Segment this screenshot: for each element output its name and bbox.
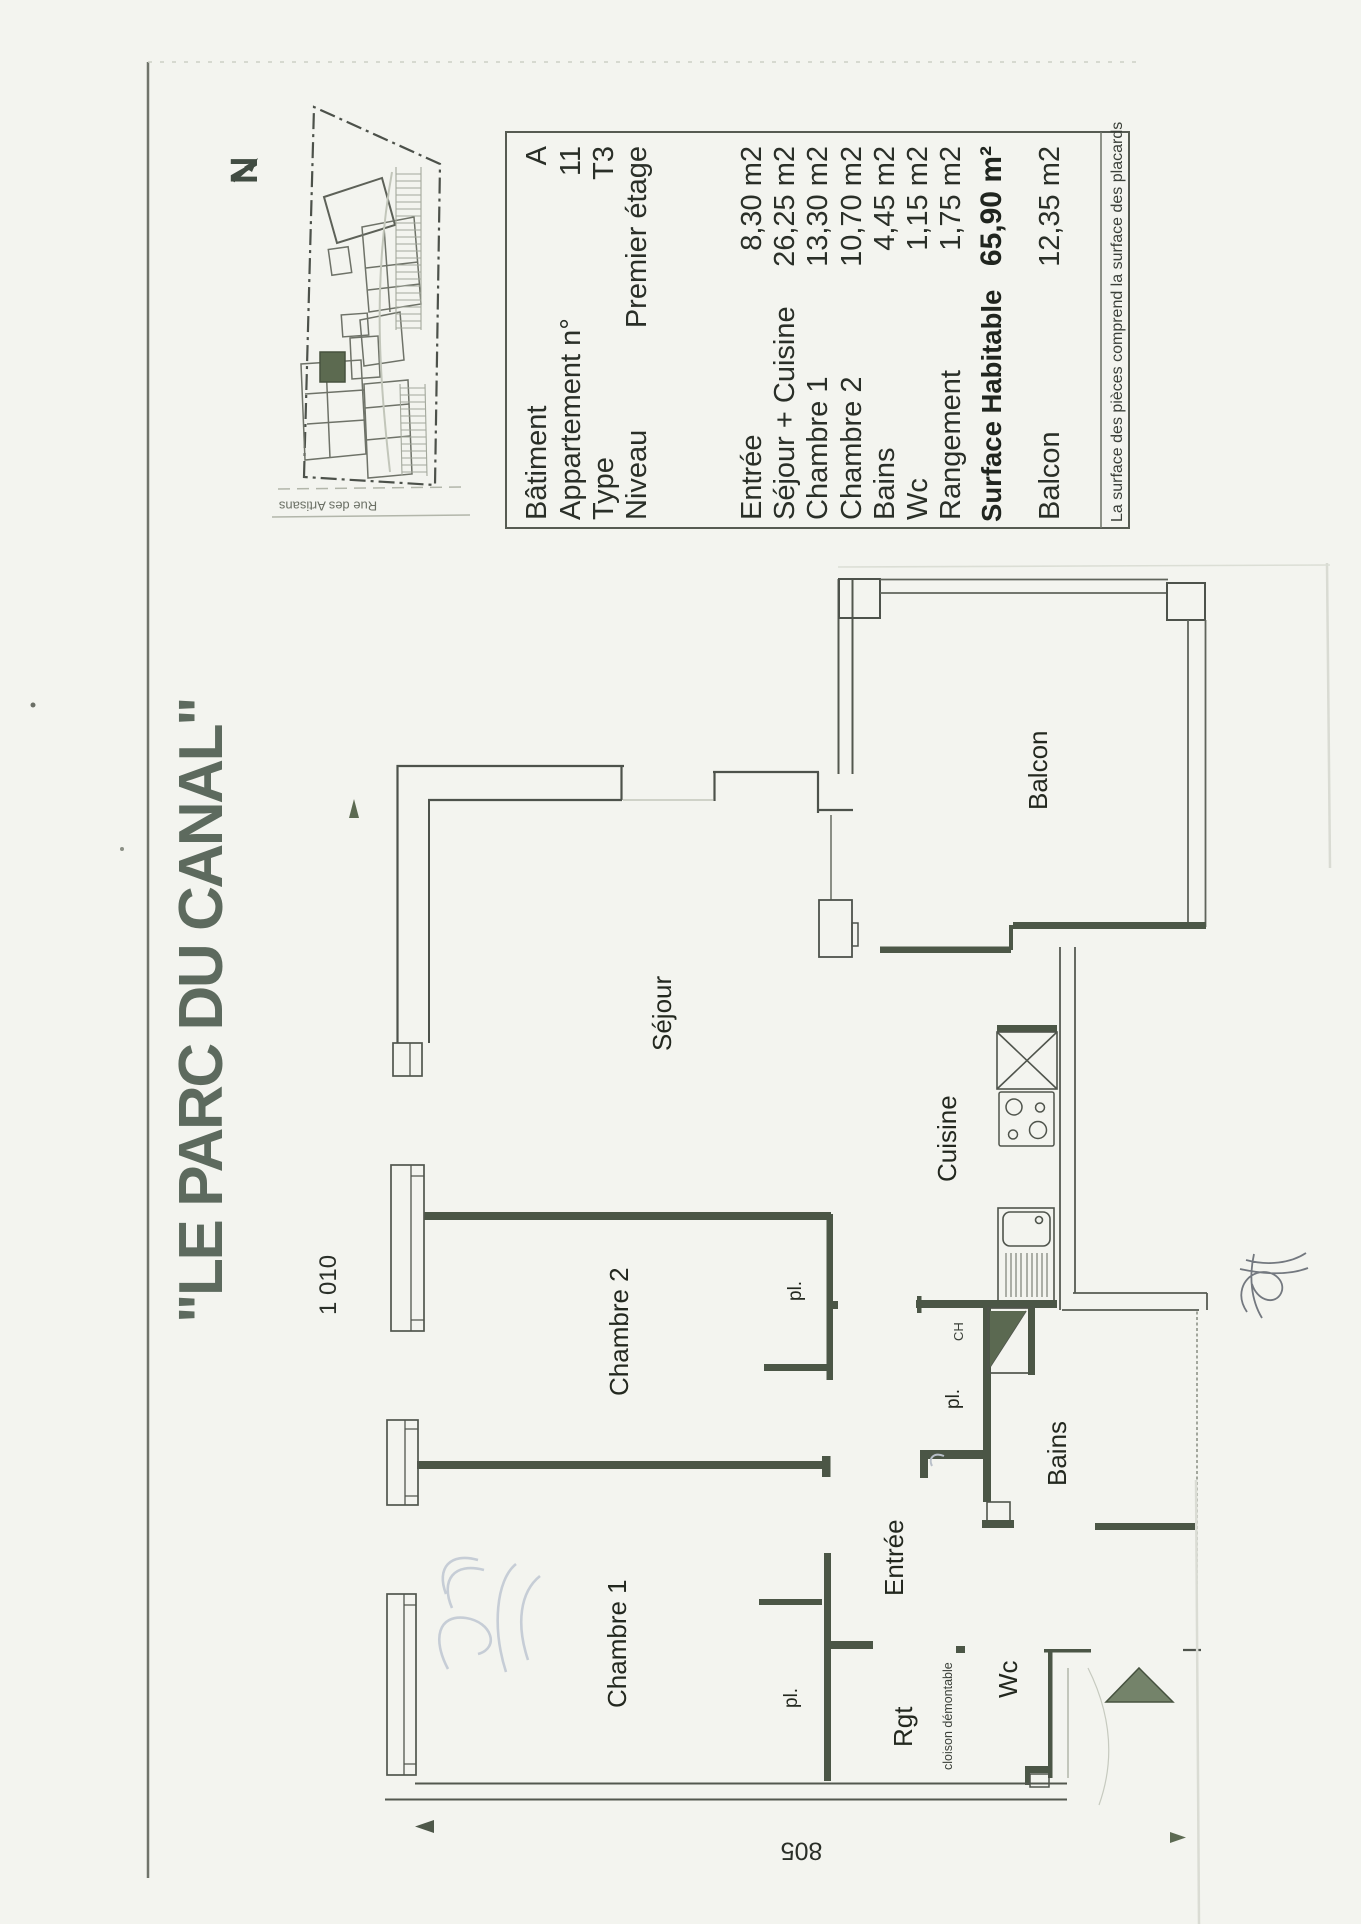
svg-text:Chambre 1: Chambre 1	[802, 377, 834, 520]
svg-text:10,70 m2: 10,70 m2	[836, 146, 868, 267]
svg-text:Chambre 2: Chambre 2	[836, 377, 868, 520]
svg-text:Chambre 2: Chambre 2	[604, 1267, 634, 1396]
svg-text:pl.: pl.	[781, 1688, 802, 1708]
svg-text:1,15 m2: 1,15 m2	[902, 146, 934, 251]
svg-text:65,90 m²: 65,90 m²	[975, 146, 1008, 266]
svg-text:Balcon: Balcon	[1023, 731, 1053, 811]
svg-text:Entrée: Entrée	[879, 1519, 909, 1596]
svg-text:Wc: Wc	[902, 478, 934, 520]
svg-text:Appartement n°: Appartement n°	[555, 318, 587, 520]
svg-text:805: 805	[781, 1837, 823, 1865]
svg-text:A: A	[521, 145, 553, 165]
svg-text:Rue des Artisans: Rue des Artisans	[278, 499, 377, 514]
svg-text:26,25 m2: 26,25 m2	[769, 146, 801, 267]
svg-text:"LE PARC DU CANAL": "LE PARC DU CANAL"	[167, 699, 236, 1323]
svg-text:cloison démontable: cloison démontable	[941, 1662, 955, 1770]
svg-text:4,45 m2: 4,45 m2	[869, 146, 901, 251]
svg-text:Wc: Wc	[993, 1660, 1023, 1698]
svg-text:pl.: pl.	[943, 1389, 964, 1409]
svg-text:Bains: Bains	[869, 447, 901, 520]
svg-text:Premier étage: Premier étage	[621, 146, 653, 328]
svg-text:11: 11	[555, 146, 587, 176]
svg-text:12,35 m2: 12,35 m2	[1034, 146, 1066, 267]
svg-text:Balcon: Balcon	[1034, 431, 1066, 520]
svg-text:Séjour: Séjour	[647, 976, 677, 1051]
svg-text:Rgt: Rgt	[888, 1706, 918, 1747]
svg-text:pl.: pl.	[785, 1281, 806, 1301]
svg-text:La surface des pièces comprend: La surface des pièces comprend la surfac…	[1109, 122, 1126, 522]
svg-text:Chambre 1: Chambre 1	[602, 1579, 632, 1708]
svg-text:1 010: 1 010	[315, 1255, 342, 1315]
svg-text:Bains: Bains	[1042, 1421, 1072, 1486]
svg-text:CH: CH	[951, 1322, 966, 1341]
svg-text:Cuisine: Cuisine	[932, 1095, 962, 1182]
svg-text:Bâtiment: Bâtiment	[521, 406, 553, 520]
svg-text:Type: Type	[588, 457, 620, 520]
svg-text:Surface Habitable: Surface Habitable	[976, 290, 1007, 522]
svg-text:T3: T3	[588, 146, 620, 180]
svg-text:Séjour + Cuisine: Séjour + Cuisine	[769, 306, 801, 520]
svg-text:Rangement: Rangement	[935, 370, 967, 520]
svg-text:Entrée: Entrée	[736, 435, 768, 520]
svg-text:8,30 m2: 8,30 m2	[736, 146, 768, 251]
svg-text:1,75 m2: 1,75 m2	[935, 146, 967, 251]
svg-text:13,30 m2: 13,30 m2	[802, 146, 834, 267]
svg-text:Niveau: Niveau	[621, 430, 653, 520]
